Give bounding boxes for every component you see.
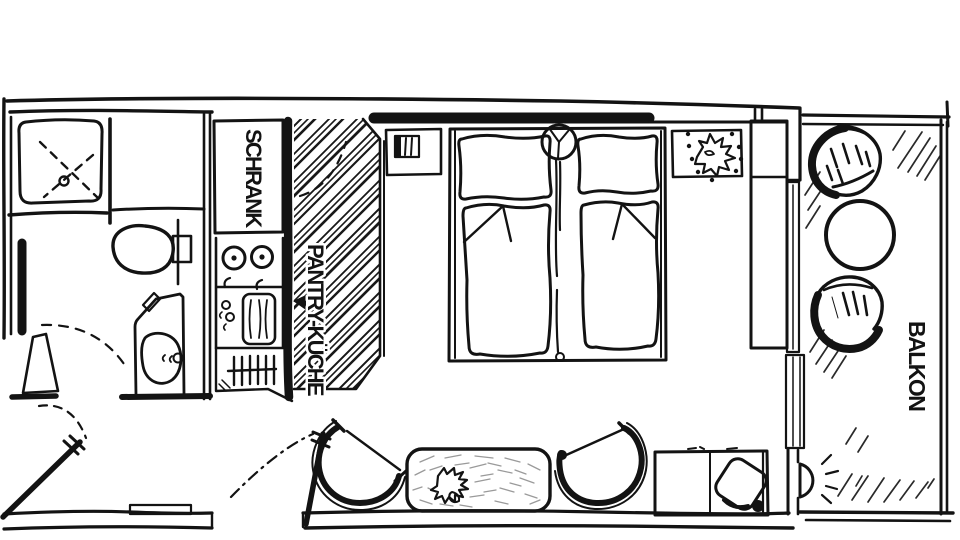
svg-text:BALKON: BALKON — [904, 321, 930, 411]
svg-text:SCHRANK: SCHRANK — [241, 129, 266, 228]
svg-text:PANTRY-KÜCHE: PANTRY-KÜCHE — [303, 244, 328, 396]
